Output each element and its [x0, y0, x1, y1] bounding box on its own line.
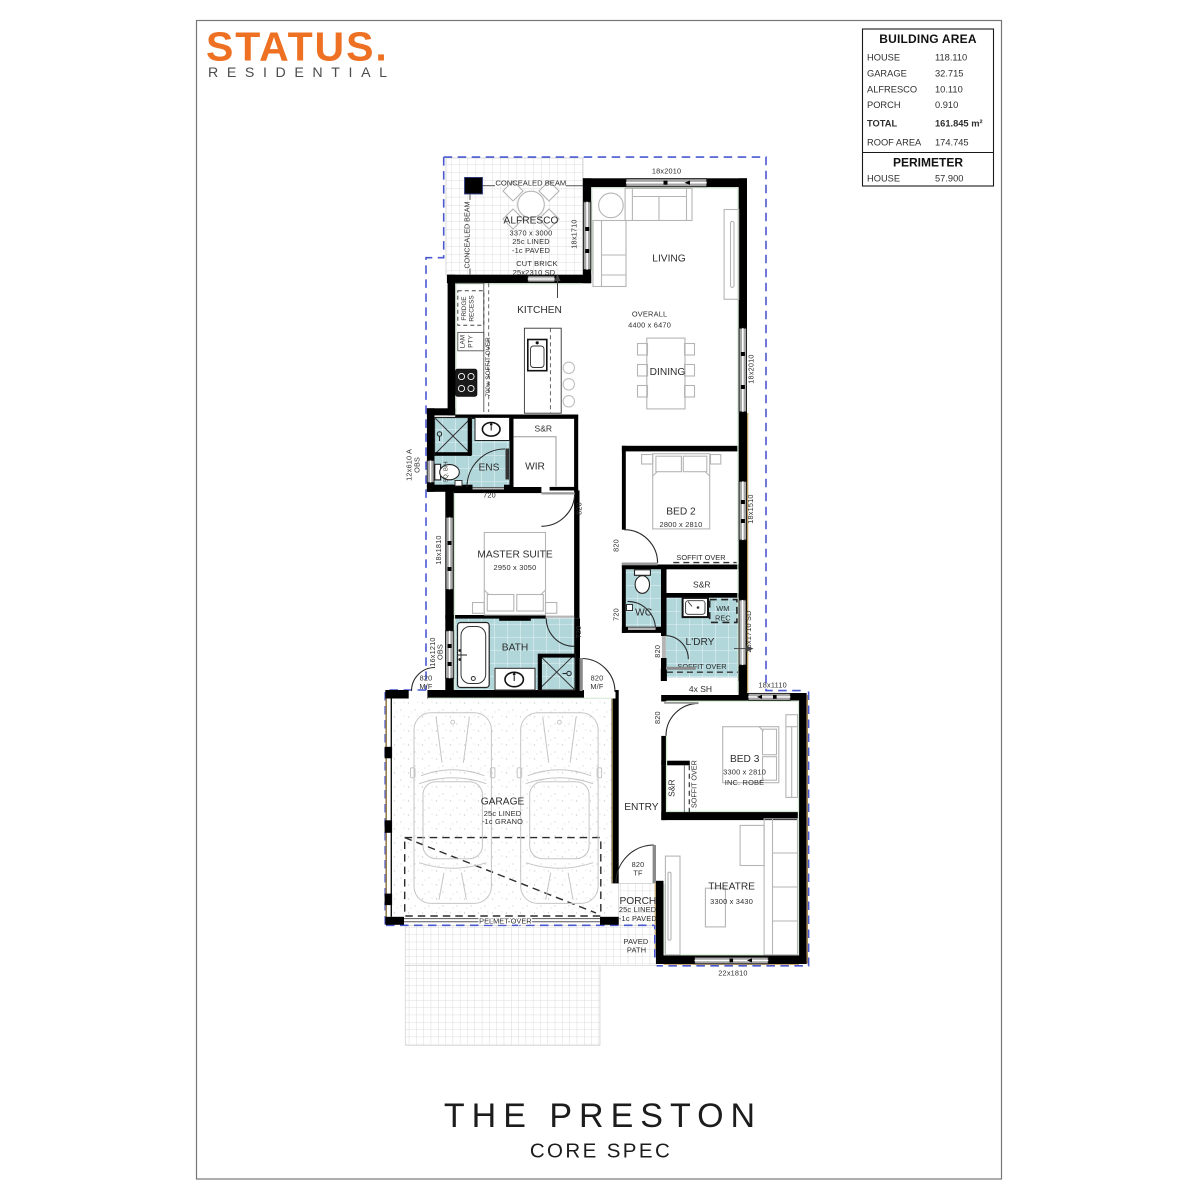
svg-text:720: 720 [574, 626, 583, 639]
svg-text:22x1810: 22x1810 [718, 969, 747, 978]
svg-text:KITCHEN: KITCHEN [517, 305, 562, 316]
svg-text:THEATRE: THEATRE [708, 882, 755, 893]
svg-text:118.110: 118.110 [935, 53, 967, 63]
svg-text:HOUSE: HOUSE [867, 53, 900, 63]
svg-text:S&R: S&R [667, 779, 677, 796]
svg-text:720: 720 [612, 608, 621, 621]
svg-text:4x SH: 4x SH [689, 684, 712, 694]
svg-text:MASTER SUITE: MASTER SUITE [477, 550, 552, 561]
svg-text:OBS: OBS [413, 457, 422, 473]
svg-text:PORCH: PORCH [867, 100, 901, 110]
svg-text:CUT BRICK: CUT BRICK [516, 259, 558, 268]
svg-text:FRIDGE: FRIDGE [461, 296, 468, 320]
svg-text:PATH: PATH [627, 945, 646, 954]
svg-text:25c LINED: 25c LINED [619, 905, 657, 914]
svg-text:25x2310 SD: 25x2310 SD [513, 268, 556, 277]
svg-text:2950 x 3050: 2950 x 3050 [494, 563, 537, 572]
svg-text:INC. ROBE: INC. ROBE [725, 778, 765, 787]
svg-text:GARAGE: GARAGE [481, 797, 525, 808]
svg-text:PELMET OVER: PELMET OVER [479, 917, 531, 926]
svg-text:M/F: M/F [419, 682, 433, 691]
svg-text:RESIDENTIAL: RESIDENTIAL [208, 65, 396, 81]
svg-text:GARAGE: GARAGE [867, 69, 907, 79]
svg-text:25x1710 SD: 25x1710 SD [744, 610, 753, 652]
svg-text:820: 820 [653, 645, 662, 658]
svg-text:-1c GRANO: -1c GRANO [482, 817, 523, 826]
svg-text:820: 820 [575, 502, 584, 515]
svg-text:ALFRESCO: ALFRESCO [867, 85, 917, 95]
svg-text:PERIMETER: PERIMETER [893, 156, 963, 170]
svg-text:3300 x 3430: 3300 x 3430 [710, 897, 753, 906]
svg-text:18x1110: 18x1110 [759, 681, 787, 690]
svg-text:CONCEALED BEAM: CONCEALED BEAM [463, 201, 472, 268]
svg-text:3300 x 2810: 3300 x 2810 [723, 768, 766, 777]
svg-text:STATUS.: STATUS. [206, 24, 389, 70]
svg-text:L'DRY: L'DRY [686, 637, 715, 648]
svg-text:OBS: OBS [435, 644, 444, 660]
svg-text:BATH: BATH [502, 643, 528, 654]
svg-text:32.715: 32.715 [935, 69, 963, 79]
svg-text:161.845 m²: 161.845 m² [935, 119, 983, 129]
svg-text:18x1710: 18x1710 [570, 219, 579, 248]
svg-text:WIR: WIR [525, 462, 545, 473]
svg-text:OVERALL: OVERALL [632, 309, 668, 318]
svg-text:ENTRY: ENTRY [624, 802, 659, 813]
svg-text:18x1810: 18x1810 [434, 535, 443, 564]
svg-text:0.910: 0.910 [935, 100, 958, 110]
svg-text:720: 720 [483, 491, 496, 500]
svg-text:-1c PAVED: -1c PAVED [512, 246, 550, 255]
svg-text:SOFFIT OVER: SOFFIT OVER [676, 553, 725, 562]
svg-text:57.900: 57.900 [935, 174, 963, 184]
svg-text:S&R: S&R [535, 424, 552, 434]
svg-text:820: 820 [420, 674, 433, 683]
svg-text:18x1510: 18x1510 [746, 494, 755, 523]
svg-text:SOFFIT OVER: SOFFIT OVER [689, 760, 698, 808]
svg-text:BUILDING AREA: BUILDING AREA [879, 32, 977, 46]
svg-text:LAM: LAM [460, 335, 467, 348]
svg-text:ENS: ENS [479, 463, 500, 474]
svg-text:SQ. B/H: SQ. B/H [444, 461, 450, 482]
svg-text:ALFRESCO: ALFRESCO [504, 216, 559, 227]
svg-text:DINING: DINING [650, 367, 686, 378]
svg-text:820: 820 [653, 711, 662, 724]
svg-text:820: 820 [591, 674, 604, 683]
svg-text:CORE SPEC: CORE SPEC [530, 1140, 672, 1163]
svg-text:THE PRESTON: THE PRESTON [444, 1097, 762, 1135]
svg-text:4400 x 6470: 4400 x 6470 [628, 320, 671, 329]
svg-text:WM: WM [716, 604, 729, 613]
svg-text:820: 820 [611, 539, 620, 552]
svg-text:LIVING: LIVING [652, 253, 685, 264]
svg-text:S&R: S&R [693, 580, 710, 590]
svg-text:ROOF AREA: ROOF AREA [867, 138, 922, 148]
svg-text:TOTAL: TOTAL [867, 119, 897, 129]
svg-text:CONCEALED BEAM: CONCEALED BEAM [495, 178, 566, 187]
svg-text:PTY: PTY [468, 335, 475, 348]
svg-text:18x2010: 18x2010 [747, 354, 756, 383]
svg-text:HOUSE: HOUSE [867, 174, 900, 184]
svg-text:BED 2: BED 2 [666, 507, 696, 518]
svg-text:18x2010: 18x2010 [652, 167, 681, 176]
svg-text:-1c PAVED: -1c PAVED [619, 914, 657, 923]
svg-text:2800 x 2810: 2800 x 2810 [660, 520, 703, 529]
svg-text:REC: REC [715, 614, 731, 623]
svg-text:BED 3: BED 3 [730, 754, 760, 765]
svg-text:174.745: 174.745 [935, 138, 969, 148]
svg-text:RECESS: RECESS [469, 295, 476, 321]
svg-text:700w SOFFIT OVER: 700w SOFFIT OVER [485, 337, 492, 397]
svg-text:M/F: M/F [590, 682, 604, 691]
svg-text:WC: WC [635, 608, 652, 619]
svg-text:10.110: 10.110 [935, 85, 963, 95]
svg-text:TF: TF [633, 869, 643, 878]
